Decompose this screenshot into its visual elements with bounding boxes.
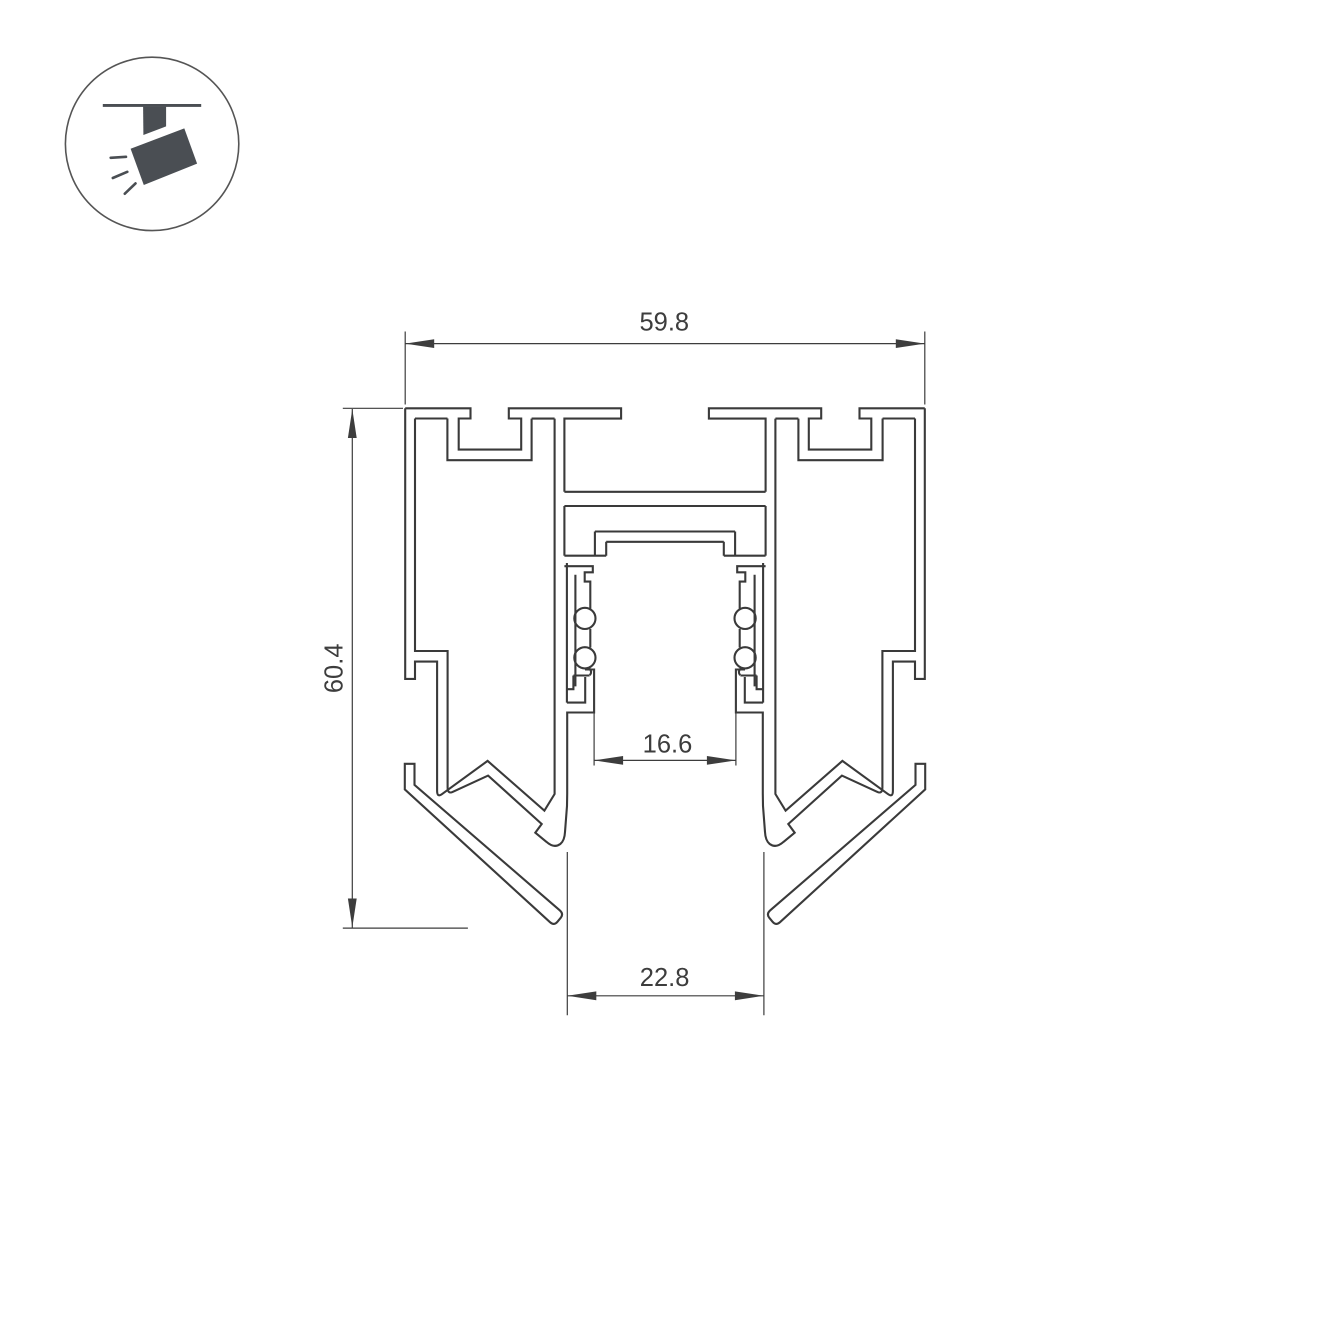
svg-text:16.6: 16.6 (643, 731, 693, 759)
svg-text:60.4: 60.4 (321, 643, 349, 693)
svg-text:22.8: 22.8 (640, 964, 690, 992)
svg-text:59.8: 59.8 (639, 309, 689, 337)
